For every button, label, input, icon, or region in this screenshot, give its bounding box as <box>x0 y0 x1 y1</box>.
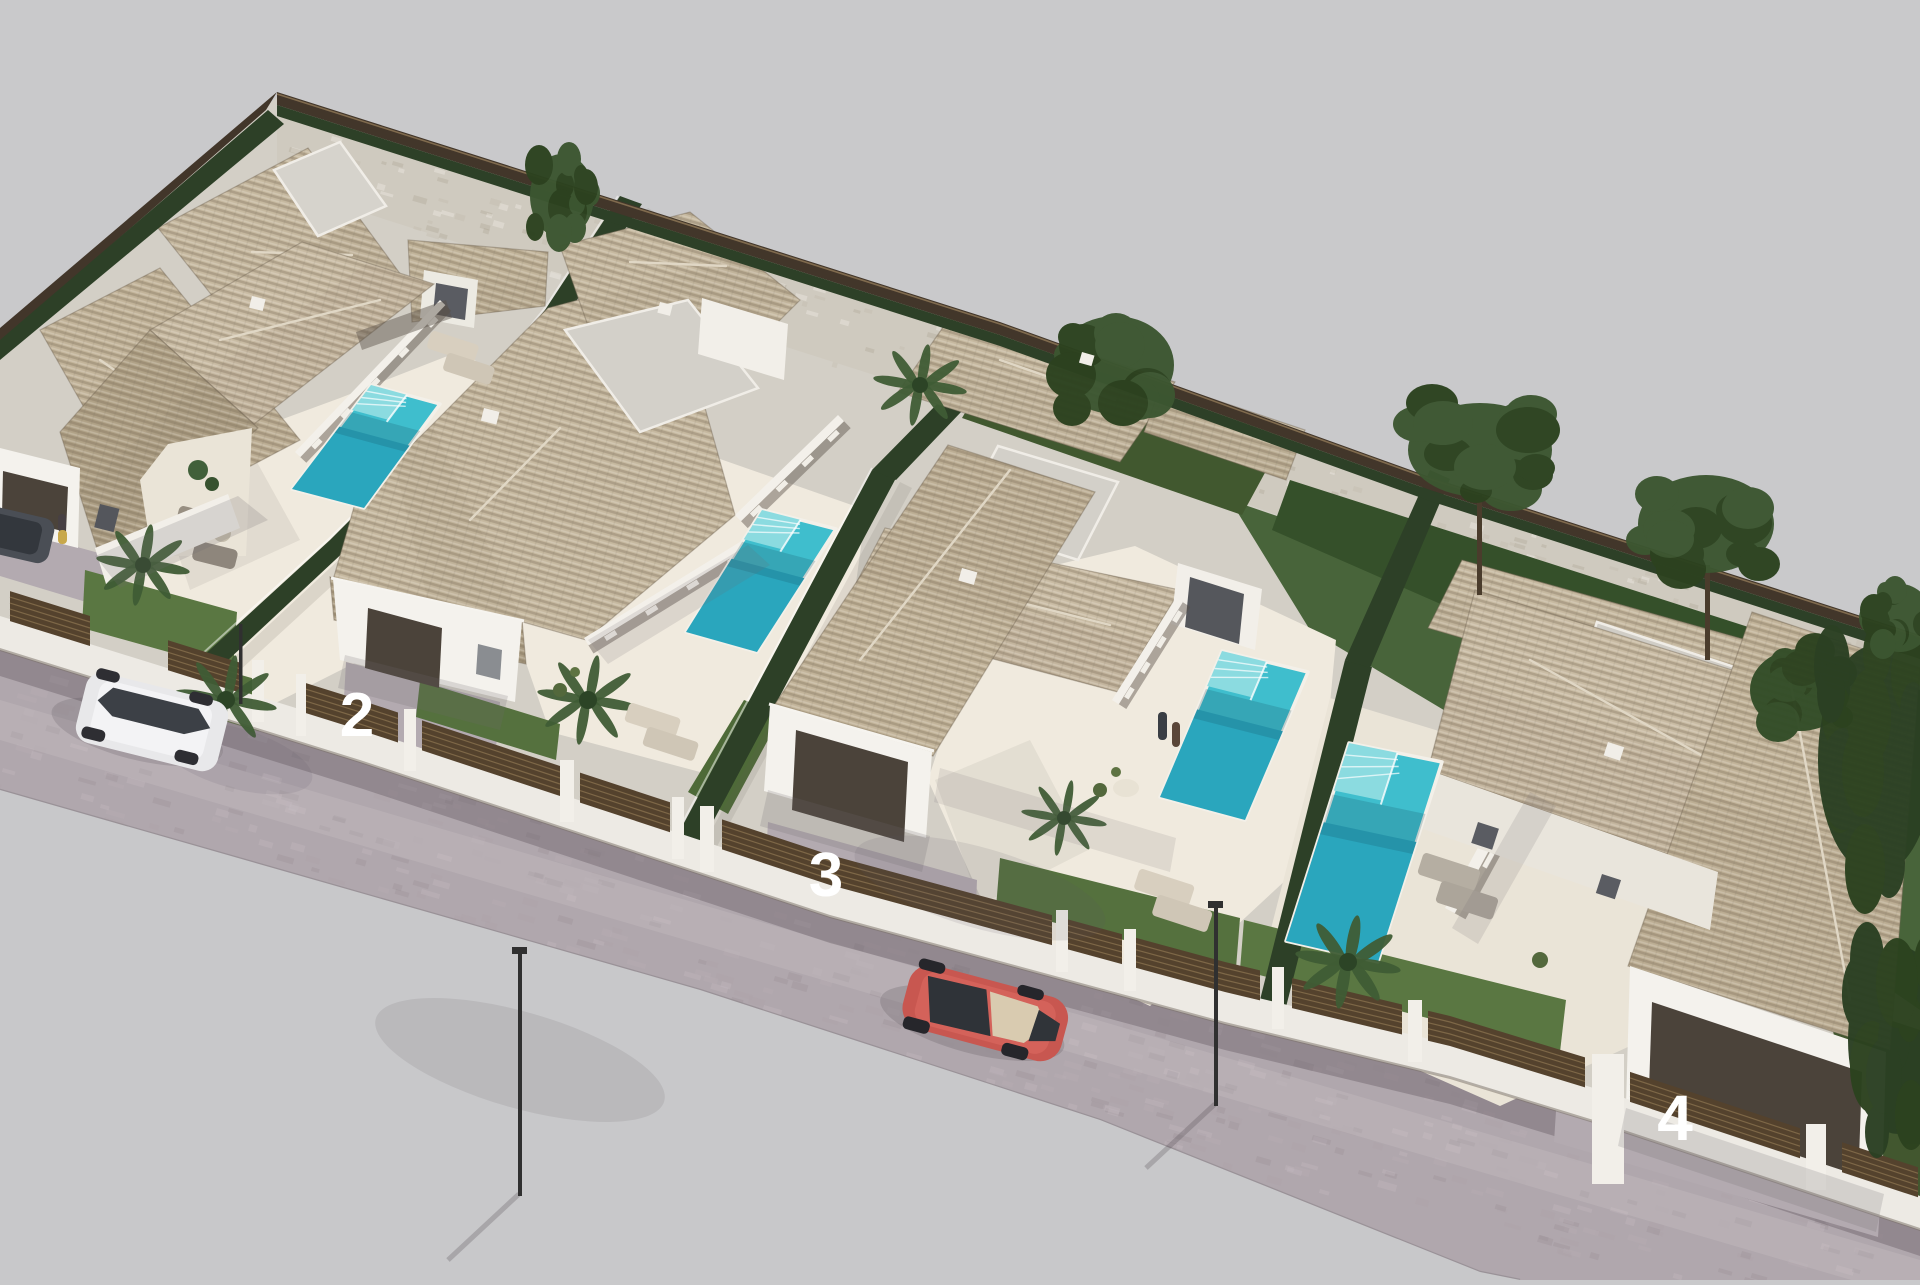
svg-text:3: 3 <box>809 841 843 910</box>
svg-text:2: 2 <box>340 681 374 750</box>
svg-text:4: 4 <box>1657 1082 1693 1154</box>
